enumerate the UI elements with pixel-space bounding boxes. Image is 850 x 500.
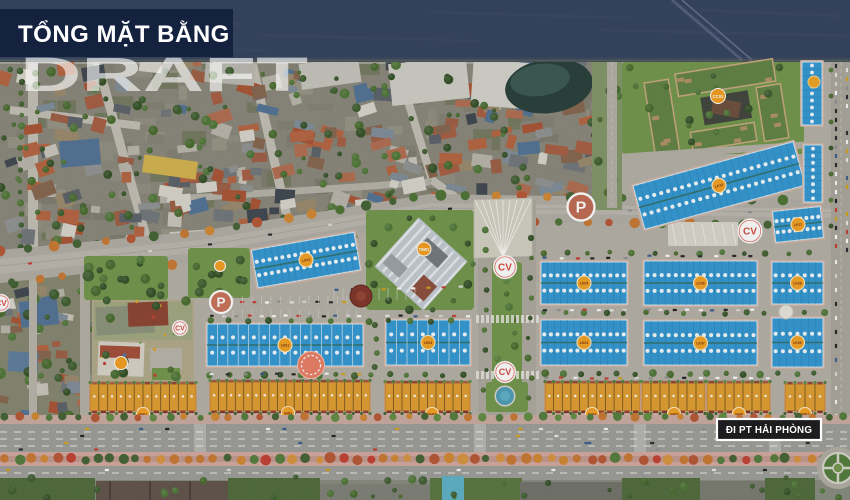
svg-text:TỔNG MẶT BẰNG: TỔNG MẶT BẰNG xyxy=(18,20,230,48)
svg-text:ĐI PT HẢI PHÒNG: ĐI PT HẢI PHÒNG xyxy=(726,424,812,436)
